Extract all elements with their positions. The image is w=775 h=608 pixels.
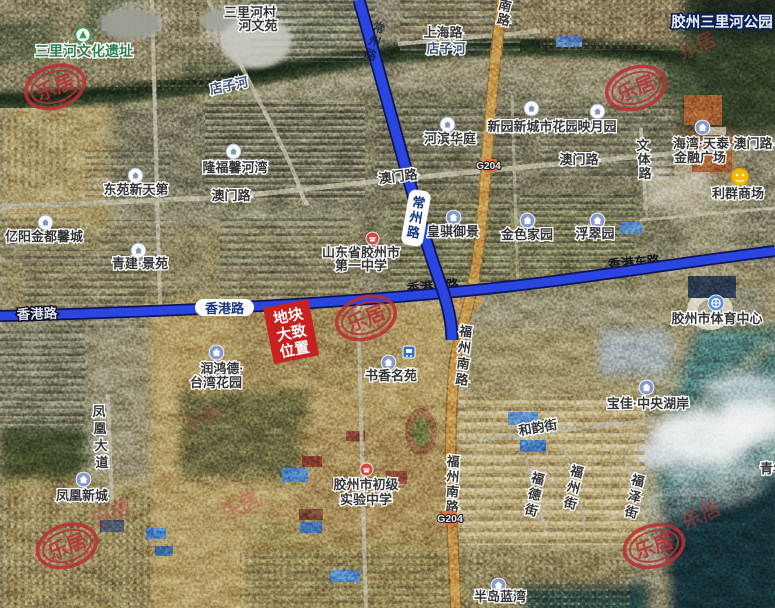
svg-text:澳门路: 澳门路	[211, 188, 251, 203]
svg-text:皇骐御景: 皇骐御景	[427, 224, 479, 239]
svg-text:润鸿德·: 润鸿德·	[200, 361, 243, 376]
svg-text:半岛蓝湾: 半岛蓝湾	[474, 589, 526, 604]
svg-text:澳门路: 澳门路	[378, 167, 420, 187]
svg-text:海湾·天泰: 海湾·天泰	[673, 136, 730, 151]
svg-text:青年: 青年	[760, 461, 775, 476]
svg-text:隆福馨河湾: 隆福馨河湾	[202, 160, 267, 175]
svg-text:州: 州	[456, 339, 472, 356]
svg-text:新园新城市花园: 新园新城市花园	[487, 119, 578, 134]
svg-text:宝佳·中央湖岸: 宝佳·中央湖岸	[607, 396, 689, 411]
svg-text:街: 街	[622, 503, 639, 521]
svg-text:福: 福	[457, 323, 473, 340]
svg-text:浮翠园: 浮翠园	[575, 226, 614, 241]
svg-text:路: 路	[455, 371, 471, 388]
svg-text:大: 大	[94, 438, 107, 453]
svg-text:胶州三里河公园: 胶州三里河公园	[671, 13, 773, 31]
svg-text:体: 体	[637, 152, 651, 167]
svg-text:街: 街	[522, 501, 539, 519]
svg-text:乐居: 乐居	[183, 401, 224, 435]
svg-text:金融广场: 金融广场	[673, 150, 726, 165]
svg-text:香港路: 香港路	[204, 301, 245, 316]
svg-text:G204: G204	[476, 161, 501, 172]
svg-text:青建·景苑: 青建·景苑	[112, 256, 168, 271]
svg-text:河滨华庭: 河滨华庭	[424, 131, 477, 146]
svg-text:澳门路: 澳门路	[559, 152, 599, 167]
svg-text:街: 街	[561, 494, 578, 512]
svg-text:书香名苑: 书香名苑	[365, 368, 417, 383]
svg-text:店子河: 店子河	[208, 74, 249, 97]
svg-text:南: 南	[456, 355, 471, 372]
svg-text:上海路: 上海路	[423, 25, 463, 40]
svg-text:州: 州	[445, 468, 460, 484]
svg-text:G204: G204	[437, 513, 463, 525]
svg-text:金色家园: 金色家园	[500, 227, 553, 242]
svg-text:亿阳金都馨城: 亿阳金都馨城	[5, 229, 83, 244]
svg-text:乐居: 乐居	[678, 497, 724, 535]
svg-text:路: 路	[495, 11, 512, 29]
svg-text:河文苑: 河文苑	[238, 18, 277, 33]
svg-text:路: 路	[638, 166, 652, 181]
svg-text:三里河文化遗址: 三里河文化遗址	[35, 43, 133, 59]
svg-text:乐居: 乐居	[676, 28, 720, 64]
svg-text:店子河: 店子河	[426, 41, 465, 56]
svg-text:凰: 凰	[93, 421, 106, 436]
svg-text:和韵街: 和韵街	[517, 417, 558, 439]
svg-text:澳门路: 澳门路	[733, 136, 773, 151]
svg-text:香港路: 香港路	[15, 305, 58, 322]
svg-text:福: 福	[445, 453, 460, 469]
svg-text:乐居: 乐居	[218, 488, 264, 526]
svg-text:实验中学: 实验中学	[340, 492, 392, 507]
svg-text:凤: 凤	[92, 404, 105, 419]
svg-text:东苑新天第: 东苑新天第	[103, 182, 168, 197]
svg-text:南: 南	[445, 484, 459, 500]
svg-text:第一中学: 第一中学	[335, 258, 387, 273]
svg-text:凤凰新城: 凤凰新城	[56, 488, 108, 503]
svg-text:胶州市体育中心: 胶州市体育中心	[671, 311, 762, 326]
svg-text:胶州市初级: 胶州市初级	[333, 477, 399, 492]
svg-text:文: 文	[636, 138, 650, 153]
svg-text:道: 道	[95, 455, 108, 470]
svg-text:利群商场: 利群商场	[712, 186, 764, 201]
svg-text:映月园: 映月园	[577, 119, 616, 134]
svg-text:台湾花园: 台湾花园	[190, 375, 242, 390]
